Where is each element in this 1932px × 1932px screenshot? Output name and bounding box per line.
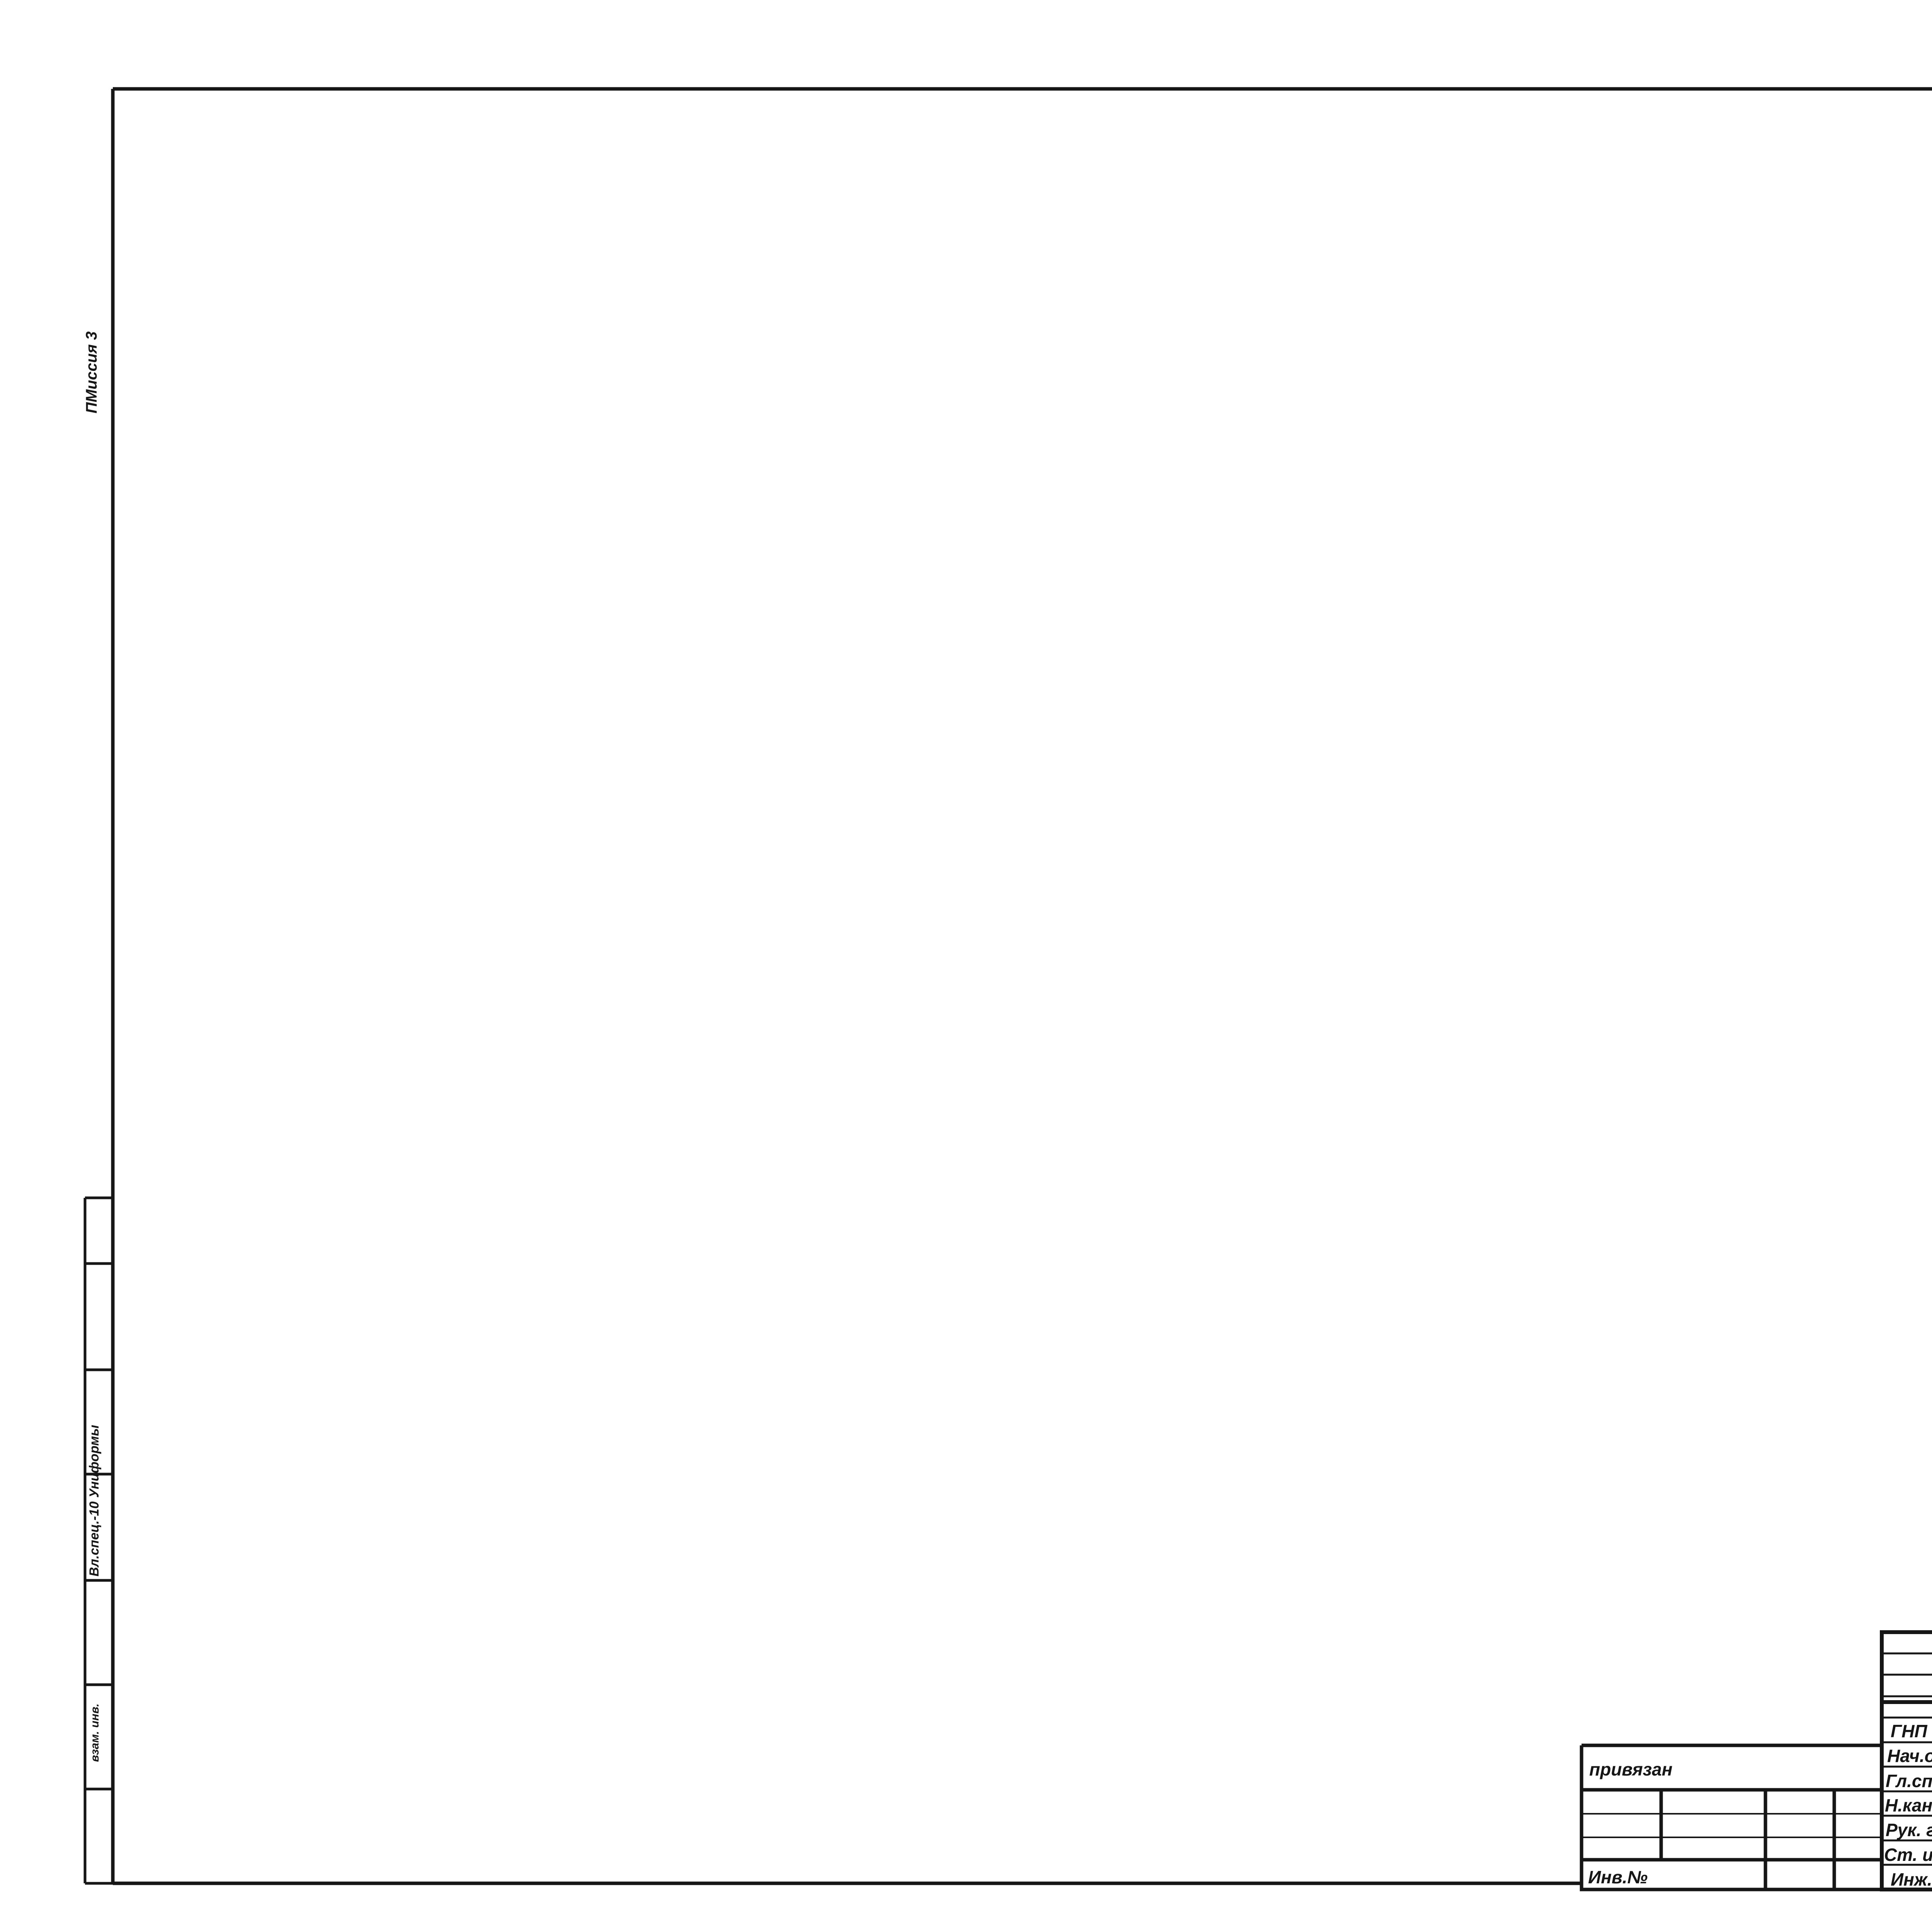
svg-text:ПМиссия 3: ПМиссия 3	[83, 332, 100, 413]
svg-text:Гл.спец.: Гл.спец.	[1886, 1771, 1932, 1791]
svg-text:Инж.: Инж.	[1891, 1869, 1932, 1889]
svg-text:взам. инв.: взам. инв.	[88, 1704, 101, 1762]
svg-text:привязан: привязан	[1589, 1759, 1672, 1779]
svg-text:Вл.спец.-10 Униформы: Вл.спец.-10 Униформы	[87, 1425, 102, 1577]
svg-text:Н.кантр.: Н.кантр.	[1885, 1795, 1932, 1815]
svg-text:Рук. гр.: Рук. гр.	[1886, 1820, 1932, 1840]
svg-text:Ст. инж: Ст. инж	[1884, 1845, 1932, 1865]
svg-text:ГНП: ГНП	[1891, 1721, 1927, 1741]
svg-text:Нач.отд: Нач.отд	[1887, 1746, 1932, 1766]
svg-text:Инв.№: Инв.№	[1588, 1867, 1648, 1887]
